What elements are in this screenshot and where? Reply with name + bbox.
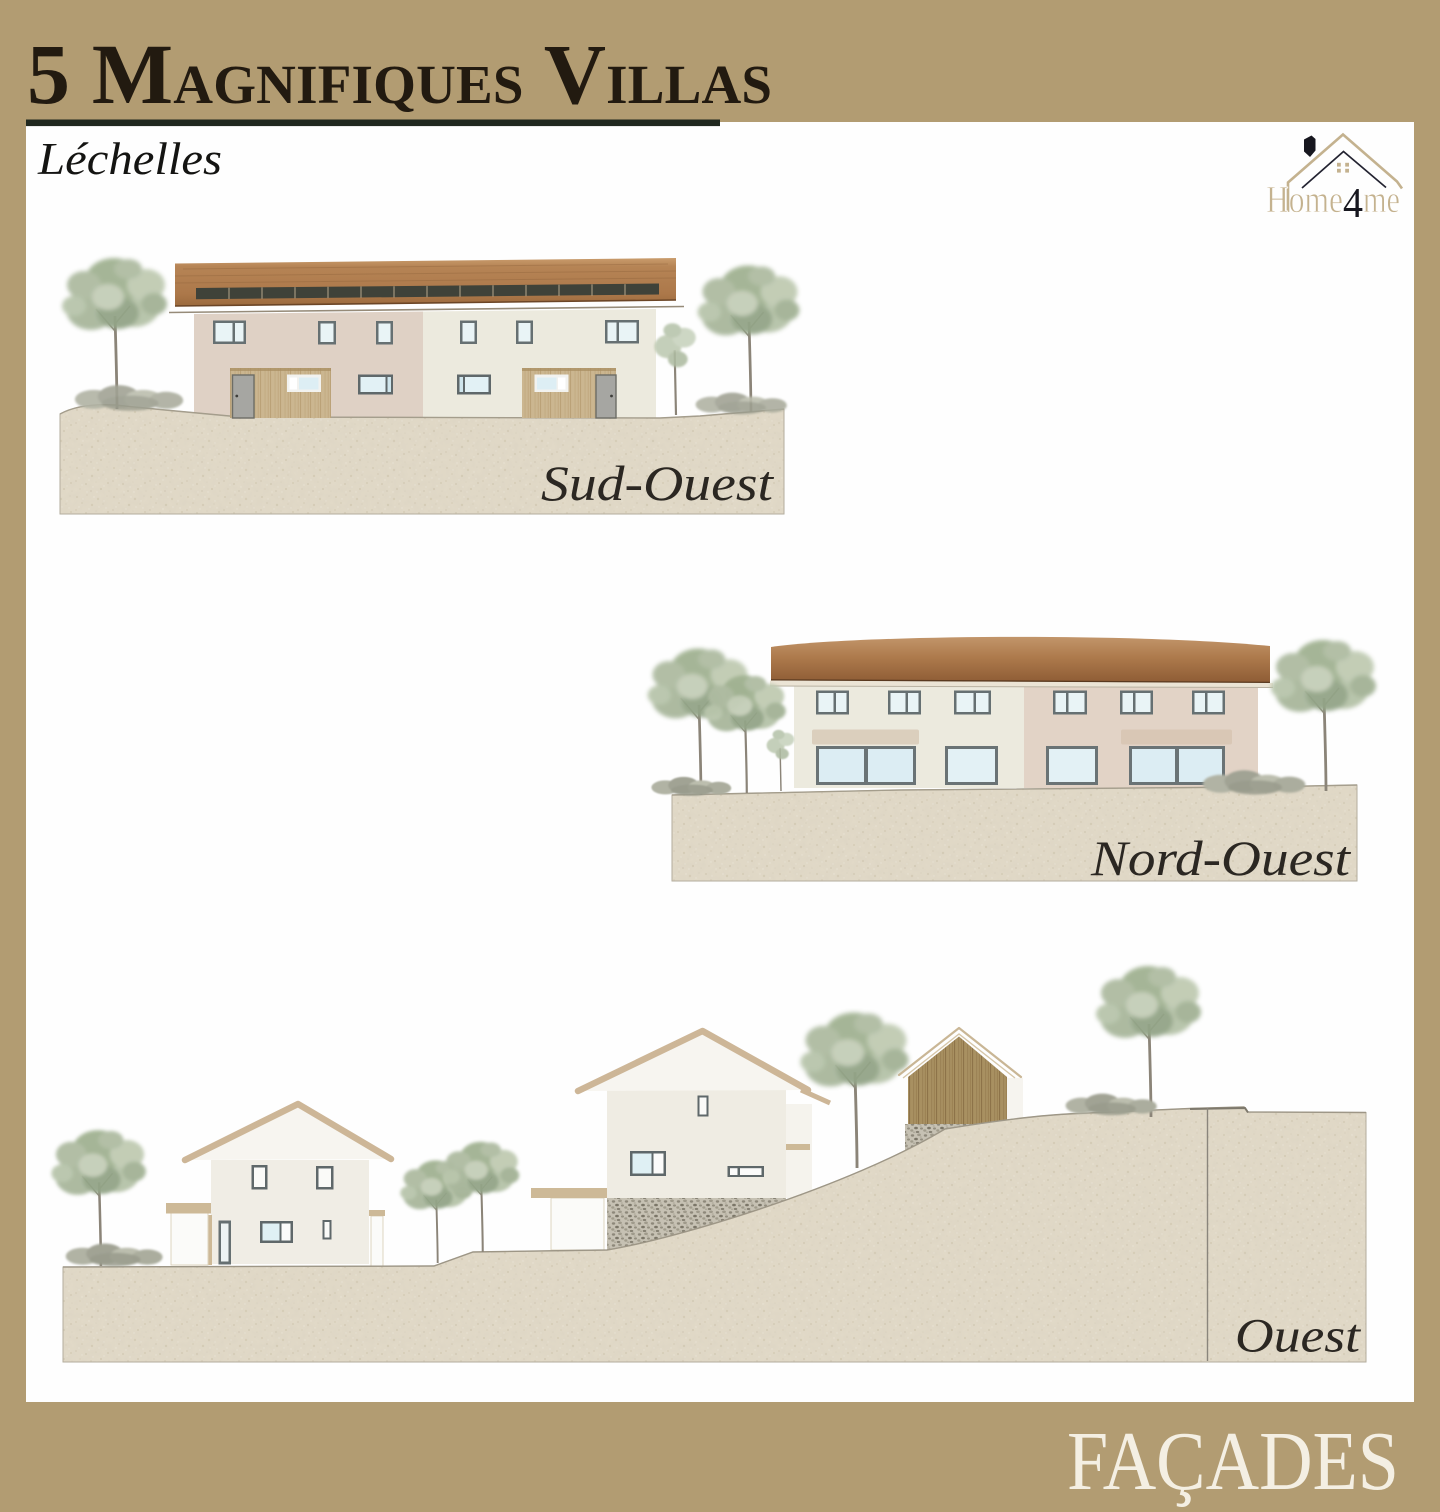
svg-text:Léchelles: Léchelles xyxy=(37,133,222,184)
svg-text:me: me xyxy=(1363,179,1400,221)
svg-text:Sud-Ouest: Sud-Ouest xyxy=(541,455,774,511)
svg-text:Nord-Ouest: Nord-Ouest xyxy=(1090,830,1351,886)
svg-text:FAÇADES: FAÇADES xyxy=(1067,1415,1399,1508)
svg-text:4: 4 xyxy=(1343,181,1363,227)
svg-text:Home: Home xyxy=(1266,179,1343,221)
svg-text:Ouest: Ouest xyxy=(1235,1310,1362,1363)
